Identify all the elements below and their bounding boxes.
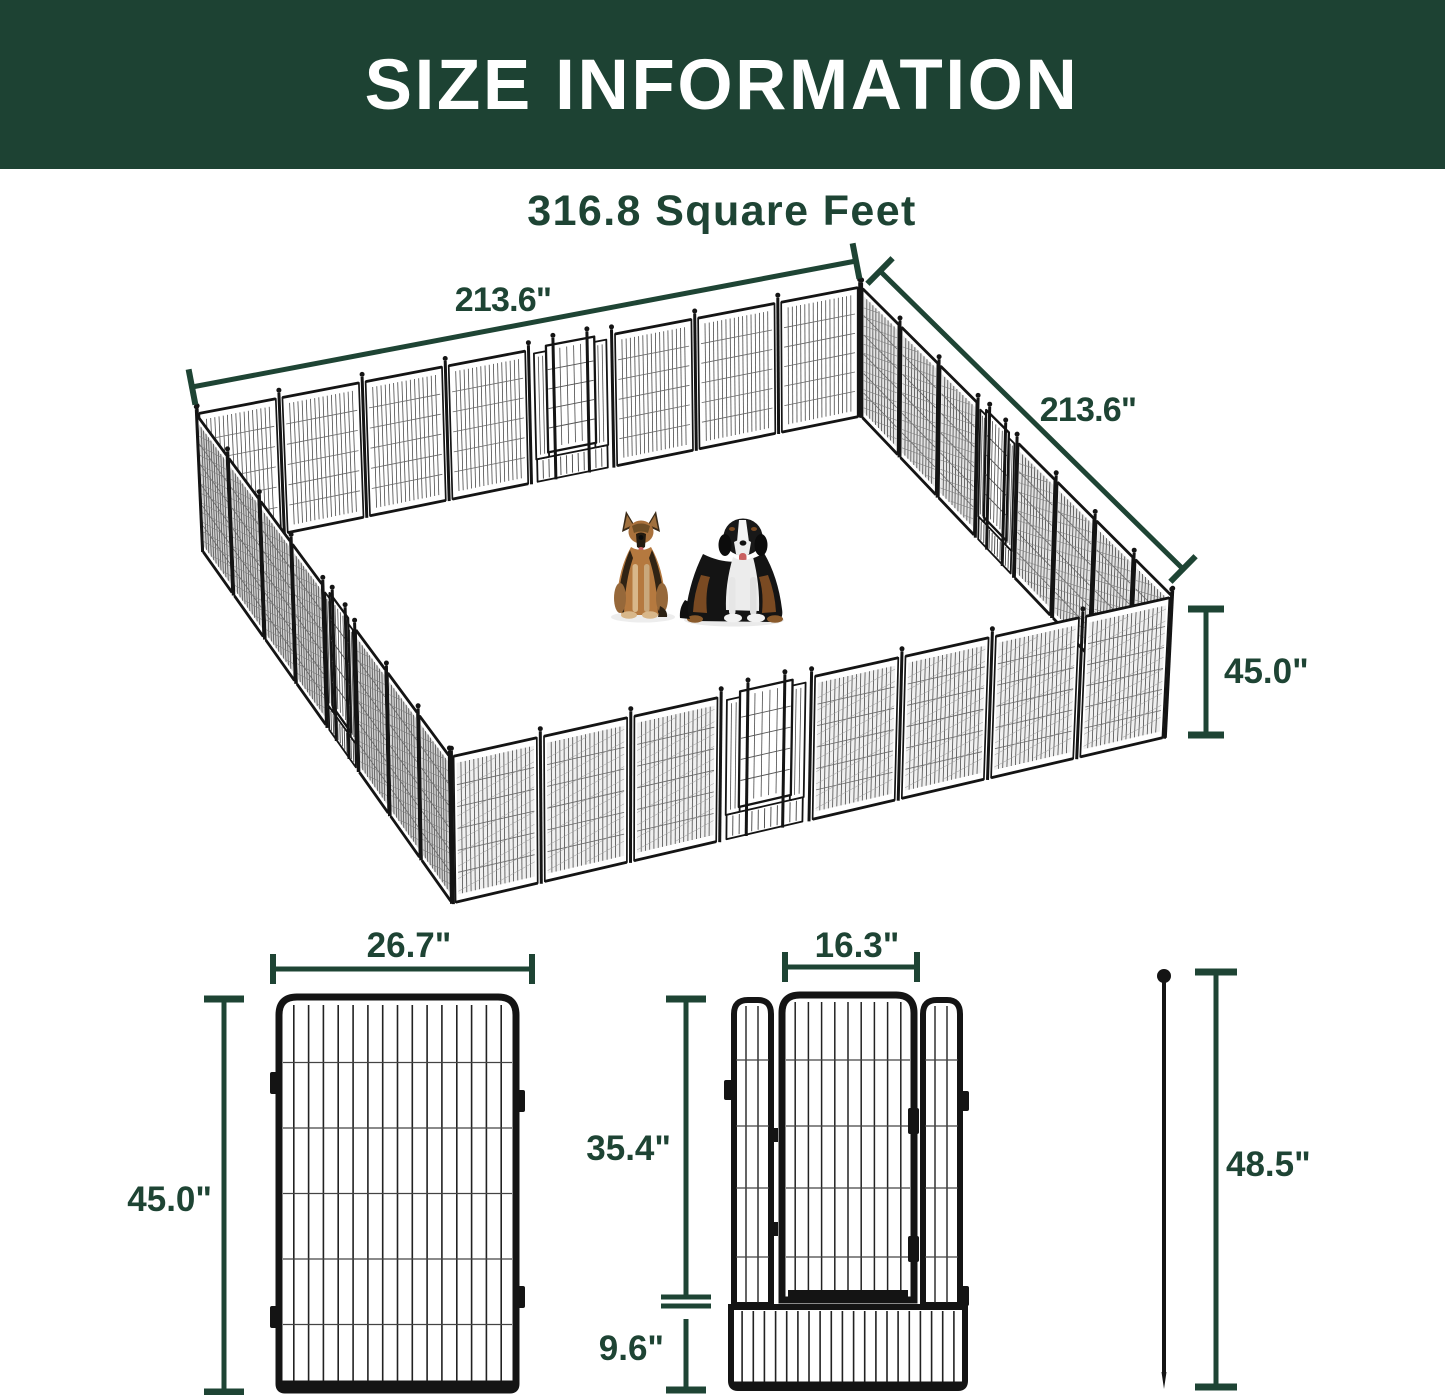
svg-text:48.5": 48.5" — [1226, 1145, 1311, 1184]
svg-text:SIZE INFORMATION: SIZE INFORMATION — [365, 46, 1080, 125]
svg-text:35.4": 35.4" — [586, 1129, 671, 1168]
svg-text:316.8 Square Feet: 316.8 Square Feet — [527, 187, 917, 235]
svg-text:16.3": 16.3" — [815, 926, 900, 965]
svg-text:213.6": 213.6" — [455, 281, 551, 319]
svg-text:26.7": 26.7" — [367, 926, 452, 965]
svg-text:9.6": 9.6" — [599, 1329, 664, 1368]
svg-text:45.0": 45.0" — [1224, 652, 1309, 691]
svg-text:213.6": 213.6" — [1040, 391, 1136, 429]
svg-text:45.0": 45.0" — [127, 1180, 212, 1219]
